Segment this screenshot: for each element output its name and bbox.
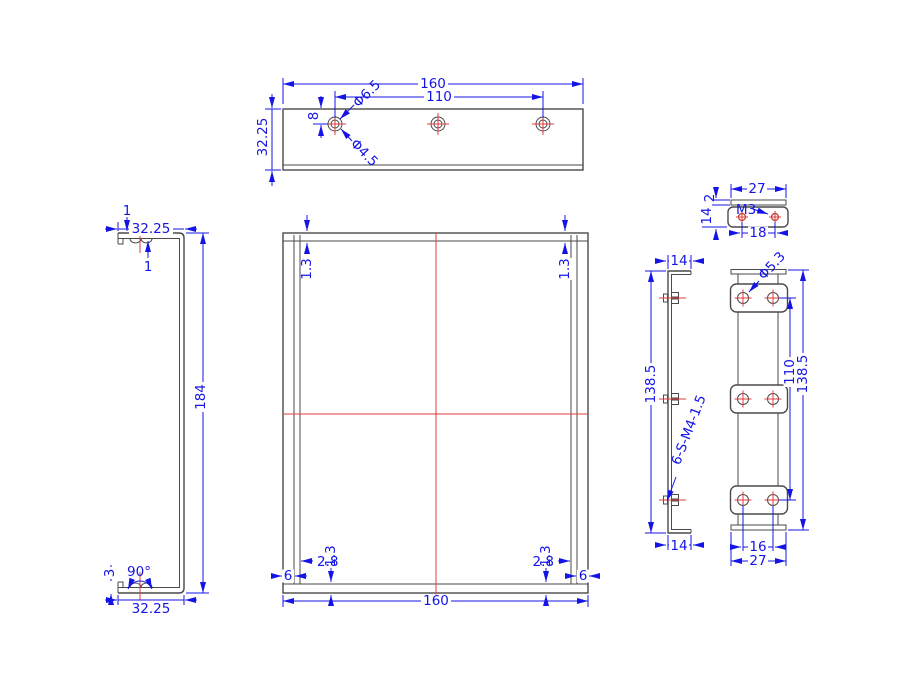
dim-front-inset-left: 2.8 [301, 554, 338, 570]
dim-left-emboss: 3 [102, 565, 118, 604]
hole-center [427, 113, 449, 135]
dim-fastener-width: 27 [731, 181, 786, 198]
channel-outline [118, 233, 184, 593]
stud-middle [659, 394, 686, 405]
dim-label: 138.5 [795, 355, 811, 394]
dim-label: 1.3 [299, 258, 315, 279]
dim-label: 6-S-M4-1.5 [668, 393, 709, 467]
dim-plate-height: 138.5 [788, 270, 811, 530]
dim-label: 6 [284, 568, 293, 584]
dim-front-width: 160 [283, 593, 588, 609]
callout-thread: M3 [736, 202, 768, 218]
dim-top-hole-edge: 8 [306, 96, 328, 138]
dim-front-gap-top-left: 1.3 [299, 215, 315, 280]
top-view: 160 110 32.25 8 [255, 76, 583, 186]
front-view: 1.3 1.3 1.3 1.3 2.8 [271, 215, 600, 609]
dim-left-lip: 1 [144, 241, 153, 275]
dim-label: 32.25 [255, 118, 271, 157]
dim-label: 1 [123, 203, 132, 219]
dim-front-edge-left: 6 [271, 568, 307, 584]
dim-side-flange-top: 14 [656, 253, 703, 269]
dim-label: 32.25 [132, 221, 171, 237]
side-profile-view: 14 138.5 6-S-M4-1.5 14 [643, 253, 710, 554]
dim-label: 2.8 [317, 554, 338, 570]
callout-counterbore: Φ6.5 [340, 77, 384, 119]
dim-label: 1.3 [557, 258, 573, 279]
left-side-view: 32.25 1 1 184 90° 3 [102, 203, 209, 617]
dim-left-flange-bottom: 32.25 [105, 595, 197, 617]
top-plate-outline [283, 109, 583, 170]
dim-label: Φ6.5 [350, 77, 384, 111]
dim-label: 138.5 [643, 365, 659, 404]
cad-drawing-page: 160 110 32.25 8 [0, 0, 900, 696]
dim-label: 90° [127, 564, 151, 580]
dim-label: 14 [670, 253, 687, 269]
dim-label: 14 [699, 207, 715, 224]
dim-label: 6 [579, 568, 588, 584]
dim-label: 2.8 [533, 554, 554, 570]
dim-front-inset-right: 2.8 [533, 554, 570, 570]
dim-left-height: 184 [186, 233, 209, 593]
emboss-section-top [130, 239, 152, 244]
dim-label: Φ5.3 [755, 249, 789, 283]
cad-drawing-canvas: 160 110 32.25 8 [0, 0, 900, 696]
dim-label: 110 [426, 89, 452, 105]
dim-label: 18 [749, 225, 766, 241]
dim-label: 1 [144, 259, 153, 275]
callout-hole-dia: Φ4.5 [341, 129, 381, 170]
dim-label: 2 [702, 194, 718, 203]
bottom-flange-edge [731, 525, 786, 530]
fastener-top-view: 27 M3 18 2 14 [699, 181, 788, 241]
dim-fastener-hole-span: 18 [729, 222, 788, 241]
dim-side-flange-bottom: 14 [656, 535, 703, 554]
dim-label: 184 [193, 384, 209, 410]
callout-stud-note: 6-S-M4-1.5 [667, 393, 710, 501]
stud-top [659, 293, 686, 304]
dim-fastener-depth: 14 [699, 207, 727, 236]
dim-label: 8 [306, 112, 322, 121]
dim-top-height: 32.25 [255, 94, 281, 186]
dim-label: 27 [749, 553, 766, 569]
dim-label: M3 [736, 202, 756, 218]
dim-side-height: 138.5 [643, 271, 666, 533]
dim-fastener-thickness: 2 [702, 191, 730, 205]
dim-front-edge-right: 6 [565, 568, 600, 584]
dim-label: 160 [423, 593, 449, 609]
dim-label: 32.25 [132, 601, 171, 617]
stud-bottom [659, 495, 686, 506]
dim-label: 14 [670, 538, 687, 554]
thread-hole-right [769, 211, 781, 223]
stud-plate-view: Φ5.3 110 138.5 16 [730, 249, 811, 569]
dim-label: 27 [748, 181, 765, 197]
dim-label: 3 [102, 569, 118, 578]
